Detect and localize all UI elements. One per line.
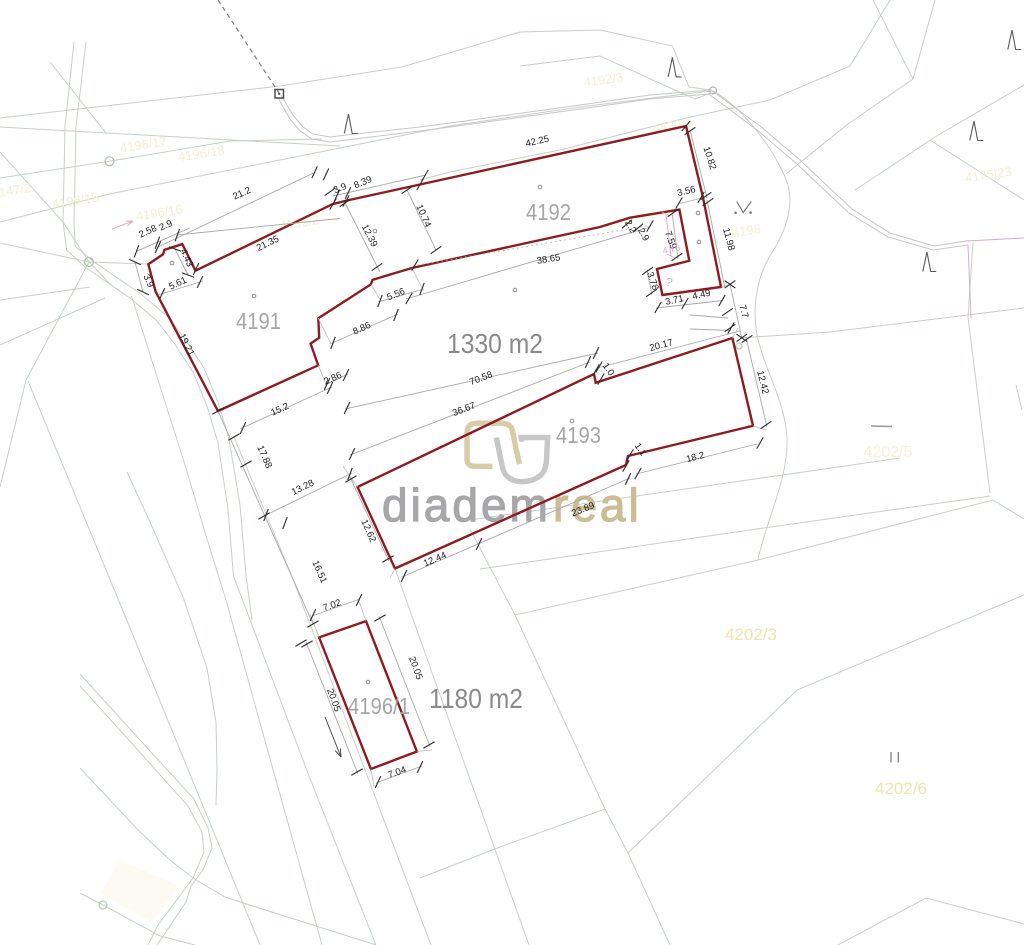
svg-text:1330 m2: 1330 m2 (447, 328, 543, 359)
svg-text:4202/6: 4202/6 (875, 779, 927, 798)
svg-text:4193: 4193 (556, 422, 601, 448)
svg-text:real: real (553, 479, 642, 531)
svg-text:4202/3: 4202/3 (725, 625, 777, 644)
svg-text:4191: 4191 (236, 308, 281, 334)
svg-text:4202/5: 4202/5 (864, 444, 913, 461)
svg-text:1180 m2: 1180 m2 (429, 683, 523, 714)
svg-text:4192: 4192 (526, 199, 571, 225)
svg-text:4196/1: 4196/1 (348, 693, 410, 719)
